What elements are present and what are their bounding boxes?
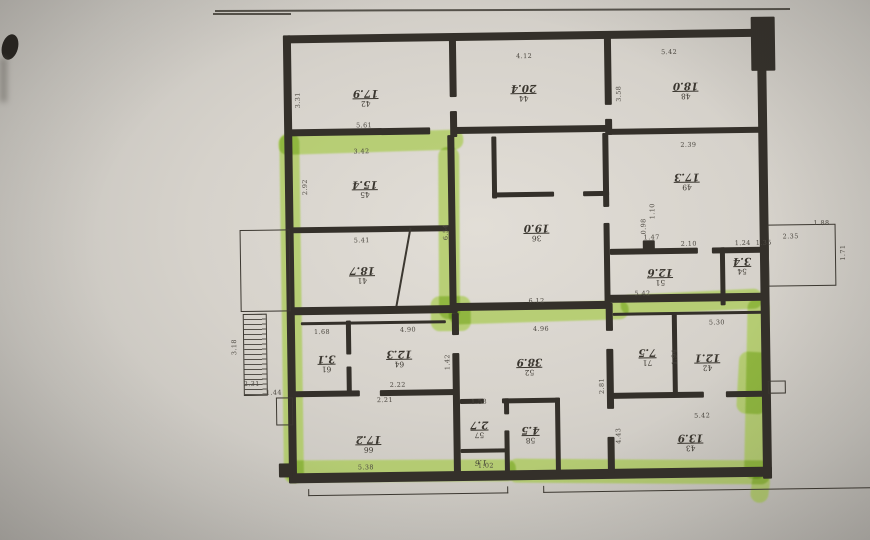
wall-notch xyxy=(643,240,655,252)
room-area: 17.9 xyxy=(353,87,379,98)
room-area: 15.4 xyxy=(352,178,378,189)
wall-segment xyxy=(555,398,561,474)
room-label: 4818.0 xyxy=(673,80,699,100)
stair-outline-left xyxy=(240,229,291,312)
dim-label: 2.35 xyxy=(783,232,799,240)
wall-segment xyxy=(602,133,609,207)
wall-outer-top xyxy=(287,29,761,44)
dim-label: 6.12 xyxy=(528,297,544,305)
room-label: 5112.6 xyxy=(647,266,673,286)
wall-diagonal xyxy=(395,228,412,311)
room-number: 58 xyxy=(521,435,539,444)
wall-pillar-top-right xyxy=(751,17,776,71)
wall-segment xyxy=(461,448,507,453)
room-number: 49 xyxy=(674,182,700,191)
room-area: 38.9 xyxy=(517,356,543,367)
dim-label: 4.90 xyxy=(400,326,416,334)
dim-label: 1.44 xyxy=(266,388,282,396)
wall-segment xyxy=(608,127,760,135)
dim-label: 1.02 xyxy=(478,462,494,470)
wall-segment xyxy=(301,320,446,325)
room-area: 18.0 xyxy=(673,80,699,91)
dim-label: 2.92 xyxy=(301,179,309,195)
wall-segment xyxy=(294,390,360,397)
room-area: 4.5 xyxy=(521,424,539,435)
floor-plan-photo: 4217.9 4420.4 4818.0 4515.4 4118.7 3619.… xyxy=(0,0,870,540)
room-area: 17.3 xyxy=(674,171,700,182)
room-area: 20.4 xyxy=(511,82,537,93)
room-area: 17.2 xyxy=(356,433,382,444)
dim-label: 3.42 xyxy=(353,147,369,155)
dim-label: 2.39 xyxy=(680,141,696,149)
room-area: 19.0 xyxy=(524,222,550,233)
dim-label: 4.96 xyxy=(533,325,549,333)
room-label: 4420.4 xyxy=(511,82,537,102)
wall-segment xyxy=(606,303,613,331)
room-area: 7.5 xyxy=(638,346,656,357)
room-label: 4917.3 xyxy=(674,171,700,191)
dimension-bracket-left xyxy=(308,486,508,496)
room-label: 4118.7 xyxy=(349,264,375,284)
dim-label: 3.31 xyxy=(294,92,302,108)
room-number: 54 xyxy=(733,266,751,275)
room-label: 4515.4 xyxy=(352,178,378,198)
wall-segment xyxy=(449,39,457,97)
room-number: 44 xyxy=(511,93,537,102)
room-label: 4313.9 xyxy=(678,432,704,452)
room-label: 584.5 xyxy=(521,424,540,444)
wall-segment xyxy=(452,353,461,475)
room-number: 51 xyxy=(647,277,673,286)
wall-segment xyxy=(346,321,351,355)
wall-segment xyxy=(491,136,497,198)
dim-label: 1.10 xyxy=(648,203,656,219)
wall-segment xyxy=(492,192,554,198)
floor-plan: 4217.9 4420.4 4818.0 4515.4 4118.7 3619.… xyxy=(0,0,870,540)
room-number: 42 xyxy=(353,98,379,107)
dim-label: 5.41 xyxy=(354,236,370,244)
dim-label: 3.18 xyxy=(230,339,238,355)
wall-stub-right xyxy=(768,380,786,393)
dim-label: 1.58 xyxy=(471,398,487,406)
room-number: 36 xyxy=(524,233,550,242)
room-area: 12.1 xyxy=(695,351,721,362)
dim-label: 2.31 xyxy=(244,380,260,388)
dim-label: 2.81 xyxy=(598,378,606,394)
room-number: 57 xyxy=(470,430,488,439)
room-number: 42 xyxy=(695,362,721,371)
dim-label: 3.58 xyxy=(615,86,623,102)
room-label: 613.1 xyxy=(317,353,336,373)
balcony-right-outline xyxy=(768,224,837,287)
wall-segment xyxy=(502,398,560,404)
room-area: 2.7 xyxy=(470,419,488,430)
dim-label: 1.71 xyxy=(839,245,847,261)
room-area: 3.1 xyxy=(317,353,335,364)
dim-label: 6.54 xyxy=(441,224,449,240)
dim-label: 0.98 xyxy=(639,218,647,234)
dim-label: 1.68 xyxy=(314,328,330,336)
dim-label: 5.30 xyxy=(709,318,725,326)
room-label: 572.7 xyxy=(470,419,489,439)
room-number: 48 xyxy=(673,91,699,100)
room-number: 66 xyxy=(356,444,382,453)
room-number: 64 xyxy=(387,359,413,368)
dim-label: 1.42 xyxy=(443,354,451,370)
room-label: 717.5 xyxy=(638,346,657,366)
dim-label: 2.10 xyxy=(681,240,697,248)
room-label: 5238.9 xyxy=(517,356,543,376)
dim-label: 5.42 xyxy=(694,411,710,419)
room-area: 12.6 xyxy=(647,266,673,277)
wall-segment xyxy=(454,125,606,134)
dim-label: 5.42 xyxy=(634,289,650,297)
room-number: 61 xyxy=(317,364,335,373)
room-label: 4212.1 xyxy=(695,351,721,371)
room-label: 6412.3 xyxy=(386,348,412,368)
room-number: 41 xyxy=(349,275,375,284)
wall-step-bottom-left xyxy=(279,463,293,477)
dim-label: 2.21 xyxy=(377,396,393,404)
room-number: 52 xyxy=(517,367,543,376)
wall-segment xyxy=(606,349,614,409)
dim-label: 1.94 xyxy=(670,349,678,365)
room-label: 543.4 xyxy=(733,255,752,275)
room-area: 3.4 xyxy=(733,255,751,266)
room-area: 12.3 xyxy=(386,348,412,359)
dim-label: 4.12 xyxy=(516,52,532,60)
dim-label: 1.35 xyxy=(756,239,772,247)
room-number: 71 xyxy=(638,357,656,366)
room-number: 43 xyxy=(678,443,704,452)
wall-segment xyxy=(726,391,764,398)
wall-segment xyxy=(452,313,459,335)
room-area: 18.7 xyxy=(349,264,375,275)
room-label: 3619.0 xyxy=(524,222,550,242)
wall-segment xyxy=(612,392,704,399)
dim-label: 5.61 xyxy=(356,121,372,129)
room-label: 4217.9 xyxy=(353,87,379,107)
room-label: 6617.2 xyxy=(356,433,382,453)
wall-segment xyxy=(604,37,612,105)
dim-label: 4.43 xyxy=(614,428,622,444)
dim-label: 5.42 xyxy=(661,48,677,56)
small-tick-left xyxy=(276,397,293,425)
dim-label: 1.24 xyxy=(735,239,751,247)
dim-label: 1.88 xyxy=(813,219,829,227)
wall-segment xyxy=(504,398,509,414)
dim-label: 5.38 xyxy=(358,463,374,471)
wall-segment xyxy=(603,223,610,305)
dim-label: 2.22 xyxy=(390,381,406,389)
room-number: 45 xyxy=(352,189,378,198)
wall-segment xyxy=(292,225,455,233)
room-area: 13.9 xyxy=(678,432,704,443)
